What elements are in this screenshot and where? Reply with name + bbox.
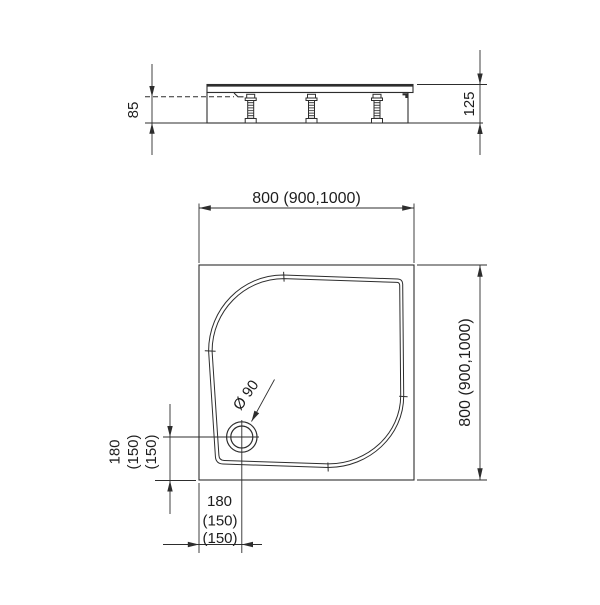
arrow-up-85: [149, 123, 154, 134]
technical-drawing: 85 125: [0, 0, 600, 600]
arrow-left-offset-bottom: [242, 542, 253, 547]
tick-left: [205, 351, 216, 352]
arrow-down-125: [477, 74, 482, 85]
arrow-down-depth: [477, 468, 482, 480]
arrow-left-width: [199, 205, 211, 210]
arrow-right-width: [402, 205, 414, 210]
arrow-up-offset-left: [167, 481, 172, 492]
dim-total-height-125: 125: [417, 50, 487, 155]
dim-label-125: 125: [461, 91, 478, 116]
dim-depth: 800 (900,1000): [417, 265, 487, 480]
offset-bottom-label-150a: (150): [202, 513, 237, 530]
tick-right: [399, 396, 407, 397]
arrow-down-85: [149, 86, 154, 97]
arrow-down-offset-left: [167, 426, 172, 437]
dim-drain-offset-bottom: 180 (150) (150): [163, 483, 262, 553]
offset-left-label-150b: (150): [143, 434, 160, 469]
offset-left-label-180: 180: [107, 439, 124, 464]
arrow-up-depth: [477, 265, 482, 277]
side-view: 85 125: [125, 50, 487, 155]
dim-width: 800 (900,1000): [199, 190, 414, 263]
plan-view: Ø 90 800 (900,1000) 800 (900,1000) 1: [107, 190, 488, 553]
dim-drain-offset-left: 180 (150) (150): [107, 404, 197, 514]
arrow-right-offset-bottom: [188, 542, 199, 547]
drawing-canvas: 85 125: [0, 0, 600, 600]
arrow-up-125: [477, 123, 482, 134]
dim-label-85: 85: [125, 102, 142, 119]
tick-top: [284, 272, 285, 282]
offset-bottom-label-180: 180: [207, 493, 232, 510]
dim-clearance-85: 85: [125, 64, 155, 155]
offset-bottom-label-150b: (150): [202, 530, 237, 547]
dim-label-depth: 800 (900,1000): [457, 318, 474, 427]
offset-left-label-150a: (150): [125, 434, 142, 469]
dim-label-width: 800 (900,1000): [252, 190, 361, 207]
